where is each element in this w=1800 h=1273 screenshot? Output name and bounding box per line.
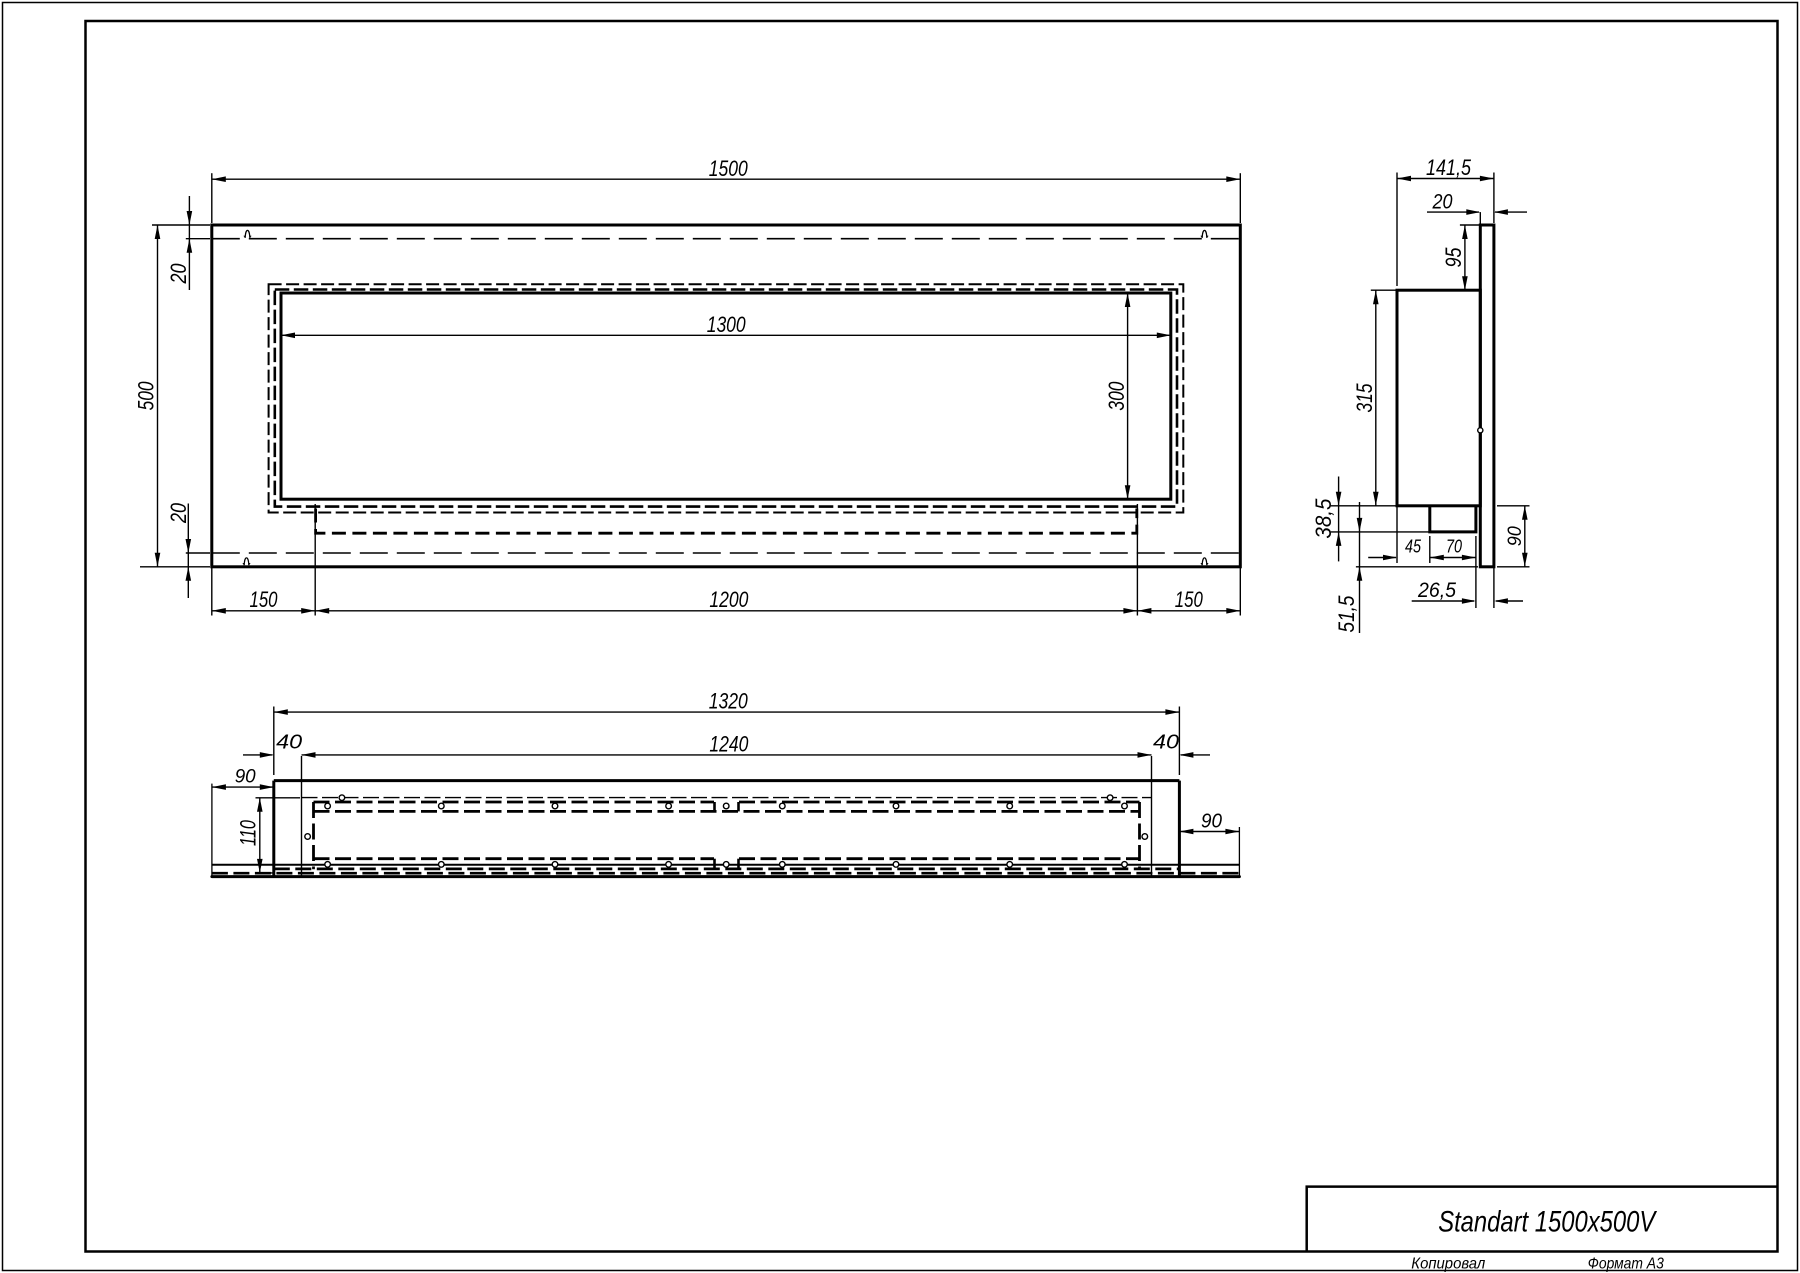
svg-text:1500: 1500 [709,156,749,181]
svg-text:1320: 1320 [709,689,749,714]
svg-text:45: 45 [1405,537,1422,557]
svg-text:70: 70 [1446,537,1462,557]
svg-text:90: 90 [1201,811,1222,833]
svg-text:26,5: 26,5 [1417,579,1456,602]
svg-text:110: 110 [236,819,261,846]
svg-text:20: 20 [1432,190,1453,213]
svg-text:20: 20 [166,502,191,523]
svg-text:90: 90 [235,767,256,788]
svg-text:40: 40 [1153,732,1179,754]
svg-text:1200: 1200 [709,587,749,612]
svg-text:300: 300 [1104,381,1129,411]
svg-text:1240: 1240 [709,731,749,756]
svg-text:150: 150 [250,587,279,612]
svg-text:1300: 1300 [707,312,747,337]
svg-text:500: 500 [134,381,159,411]
svg-text:Standart 1500x500V: Standart 1500x500V [1438,1206,1657,1239]
svg-text:40: 40 [276,732,302,754]
svg-text:38,5: 38,5 [1311,498,1336,539]
svg-text:Формат А3: Формат А3 [1588,1255,1664,1272]
svg-text:Копировал: Копировал [1411,1255,1485,1272]
svg-text:150: 150 [1175,587,1204,612]
svg-text:315: 315 [1352,383,1377,413]
svg-text:95: 95 [1441,247,1466,268]
svg-text:90: 90 [1505,526,1526,546]
svg-text:20: 20 [166,263,191,284]
svg-text:141,5: 141,5 [1426,155,1472,180]
svg-text:51,5: 51,5 [1334,595,1359,633]
